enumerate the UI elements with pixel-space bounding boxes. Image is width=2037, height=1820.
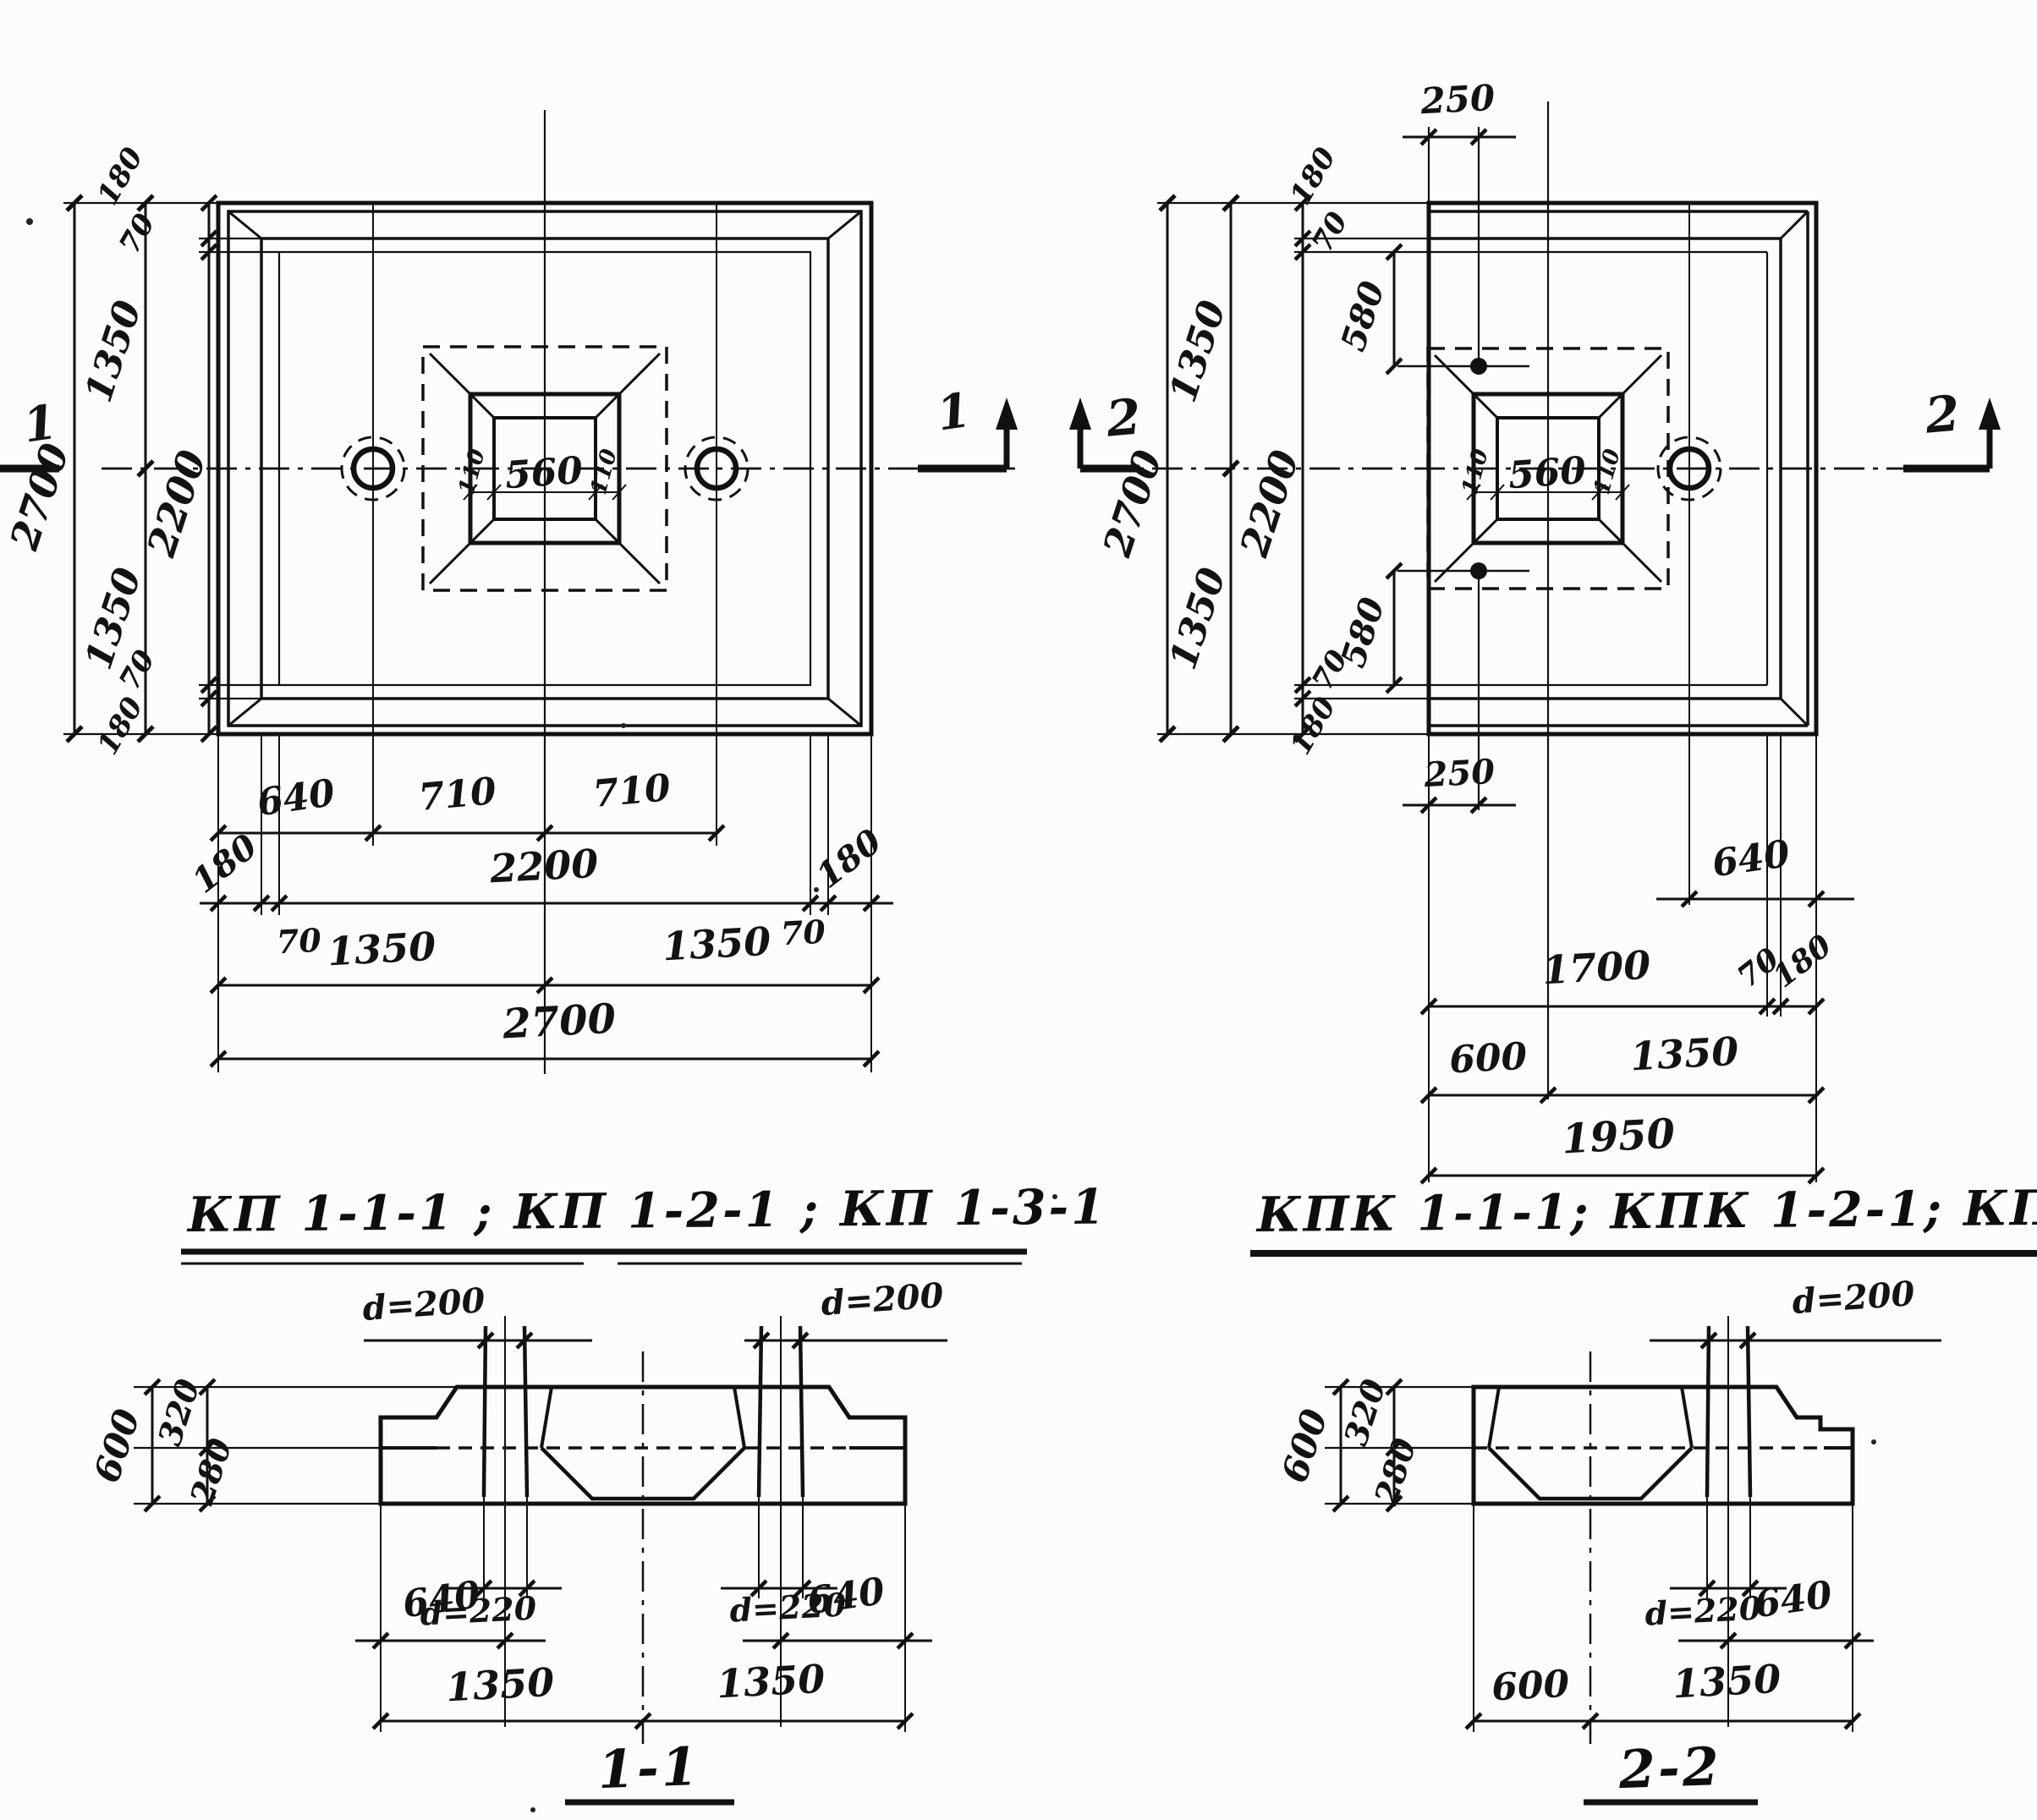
dim-height-bottom: 280 — [1366, 1434, 1424, 1510]
plan-kp-left-dims: 2700 1350 1350 2200 180 70 70 180 — [1, 141, 279, 760]
plan-kpk: 560 110 110 2 2 250 — [1069, 77, 2001, 1183]
dim-edge-bottom: 180 — [91, 691, 150, 760]
plan-kp-pocket-wall-left: 110 — [454, 447, 491, 497]
plan-kpk-top-250: 250 — [1403, 77, 1516, 145]
dim-cut-to-center: 600 — [1491, 1663, 1571, 1710]
dim-pile-dia: d=200 — [1791, 1274, 1916, 1322]
plan-kpk-left-dims: 2700 1350 1350 2200 180 70 580 580 70 18… — [1094, 141, 1429, 760]
dim-cut-to-center: 600 — [1448, 1035, 1529, 1083]
dim-pile-bottom-dia: d=220 — [1644, 1588, 1762, 1632]
section-1-1: d=200 d=200 d=220 d=220 600 320 280 640 … — [85, 1275, 947, 1802]
dim-edge-left: 180 — [184, 826, 265, 902]
dim-edge-bottom: 180 — [1283, 691, 1342, 760]
title-kp: КП 1-1-1 ; КП 1-2-1 ; КП 1-3-1 — [181, 1179, 1107, 1264]
dim-half-top: 1350 — [1161, 295, 1234, 408]
dim-hole-top: 580 — [1333, 277, 1393, 356]
dim-step-right: 70 — [780, 913, 827, 953]
blueprint-sheet: 560 110 110 1 1 2700 1350 — [0, 0, 2037, 1820]
section-2-2-label: 2-2 — [1617, 1735, 1722, 1801]
dim-step-top: 70 — [113, 208, 162, 260]
dim-pile-offset: 640 — [1752, 1573, 1835, 1626]
dim-hole-offset-top: 250 — [1419, 77, 1496, 123]
foundation-drawing: 560 110 110 1 1 2700 1350 — [0, 0, 2037, 1820]
dim-half-right: 1350 — [716, 1656, 826, 1708]
section-mark-label: 2 — [1103, 387, 1143, 447]
section-arrow-icon — [996, 397, 1018, 430]
plan-kp-pocket-wall-right: 110 — [586, 447, 623, 497]
dim-step-top: 70 — [1305, 206, 1354, 258]
dim-pile-dia-right: d=200 — [820, 1275, 945, 1324]
dim-edge-top: 180 — [91, 141, 150, 211]
dim-pile-offset: 640 — [255, 771, 338, 825]
dim-pile-dia-left: d=200 — [361, 1280, 486, 1329]
section-1-1-label: 1-1 — [597, 1735, 701, 1801]
dim-710-left: 710 — [417, 770, 498, 820]
title-kpk: КПК 1-1-1; КПК 1-2-1; КПК 1-3-1 — [1250, 1177, 2037, 1253]
plan-kp: 560 110 110 1 1 2700 1350 — [0, 110, 1018, 1074]
dim-inner-v: 2200 — [1231, 445, 1308, 562]
dim-step-left: 70 — [276, 921, 323, 962]
section-mark-label: 1 — [933, 382, 974, 442]
section-mark-1-right: 1 — [918, 382, 1018, 469]
title-kpk-text: КПК 1-1-1; КПК 1-2-1; КПК 1-3-1 — [1255, 1177, 2037, 1243]
plan-kpk-bottom-250: 250 — [1403, 752, 1516, 813]
dim-half-right: 1350 — [1629, 1028, 1740, 1080]
section-arrow-icon — [1069, 397, 1091, 430]
dim-half-top: 1350 — [77, 295, 150, 408]
dim-half-right: 1350 — [662, 918, 772, 970]
section-2-2-body — [1474, 1387, 1853, 1504]
dim-edge: 180 — [1766, 928, 1838, 995]
dim-710-right: 710 — [591, 766, 673, 816]
dim-pile-offset-right: 640 — [804, 1570, 887, 1623]
dim-total-h: 1950 — [1561, 1110, 1676, 1164]
title-kp-text: КП 1-1-1 ; КП 1-2-1 ; КП 1-3-1 — [186, 1179, 1108, 1244]
dim-height-bottom: 280 — [182, 1434, 239, 1510]
section-mark-2-right: 2 — [1903, 384, 2001, 469]
dim-half-left: 1350 — [327, 924, 437, 975]
section-2-2: d=200 d=220 600 320 280 640 600 1350 2-2 — [1273, 1274, 1941, 1802]
dim-half-bottom: 1350 — [1161, 562, 1234, 675]
section-mark-label: 2 — [1922, 384, 1962, 444]
dim-half-left: 1350 — [445, 1659, 556, 1711]
dim-total-h: 2700 — [501, 995, 617, 1049]
dim-edge-top: 180 — [1283, 141, 1342, 211]
dim-hole-offset-bottom: 250 — [1422, 752, 1496, 795]
plan-kpk-bottom-dims: 640 1700 70 180 600 1350 1950 — [1421, 734, 1854, 1183]
section-arrow-icon — [1979, 397, 2001, 430]
dim-height-top: 320 — [151, 1374, 207, 1450]
plan-kp-bottom-dims: 640 710 710 180 2200 180 70 70 1350 1350… — [184, 734, 893, 1072]
dim-half-right: 1350 — [1672, 1656, 1782, 1708]
plan-kpk-pocket-wall-right: 110 — [1590, 447, 1626, 497]
plan-kpk-pocket-wall-left: 110 — [1458, 447, 1494, 497]
dim-total-v: 2700 — [1094, 445, 1171, 562]
dim-edge-right: 180 — [809, 821, 889, 896]
dim-height-total: 600 — [1273, 1404, 1336, 1488]
dim-inner-h: 1700 — [1541, 942, 1652, 994]
dim-inner-h: 2200 — [488, 841, 600, 892]
dim-height-total: 600 — [85, 1404, 148, 1488]
dim-total-v: 2700 — [1, 438, 78, 556]
